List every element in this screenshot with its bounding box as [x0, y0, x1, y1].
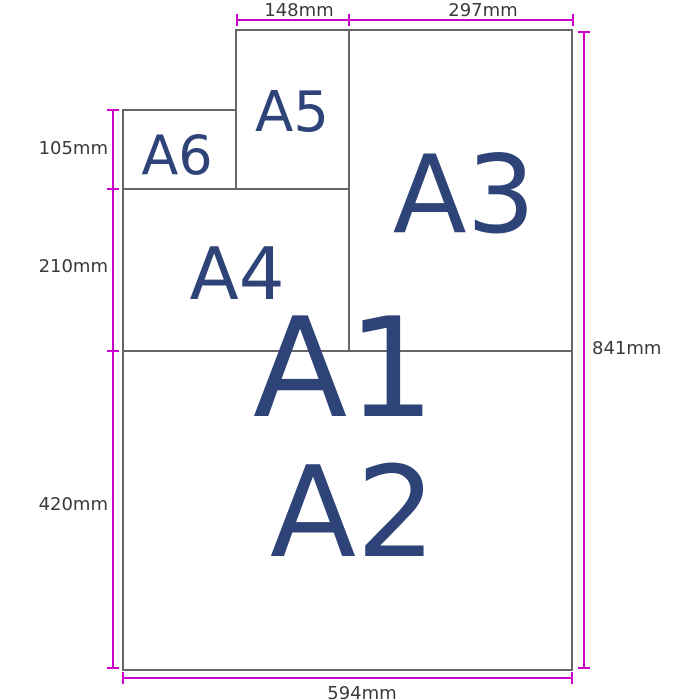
paper-label-a2: A2	[270, 450, 436, 576]
dimension-tick	[107, 667, 119, 669]
paper-sizes-diagram: 148mm 297mm 105mm 210mm 420mm 841mm 594m…	[0, 0, 700, 700]
dimension-tick	[571, 672, 573, 684]
dimension-line-left	[112, 109, 114, 669]
dimension-tick	[236, 14, 238, 26]
dimension-line-bottom	[122, 677, 573, 679]
dimension-tick	[107, 188, 119, 190]
dimension-label-a6-height: 105mm	[39, 138, 108, 159]
dimension-label-a4-height: 210mm	[39, 256, 108, 277]
dimension-tick	[348, 14, 350, 26]
dimension-label-a3-width: 297mm	[448, 0, 517, 21]
dimension-tick	[578, 31, 590, 33]
paper-label-a5: A5	[255, 85, 329, 141]
dimension-tick	[578, 667, 590, 669]
paper-label-a3: A3	[393, 142, 536, 250]
dimension-label-a1-width: 594mm	[327, 683, 396, 700]
dimension-label-a5-width: 148mm	[264, 0, 333, 21]
paper-label-a6: A6	[141, 129, 212, 183]
dimension-label-a1-height: 841mm	[592, 338, 661, 359]
dimension-tick	[107, 350, 119, 352]
dimension-label-a2-height: 420mm	[39, 494, 108, 515]
dimension-tick	[122, 672, 124, 684]
paper-label-a1: A1	[253, 300, 435, 438]
dimension-line-right	[583, 31, 585, 669]
dimension-tick	[107, 109, 119, 111]
dimension-tick	[572, 14, 574, 26]
